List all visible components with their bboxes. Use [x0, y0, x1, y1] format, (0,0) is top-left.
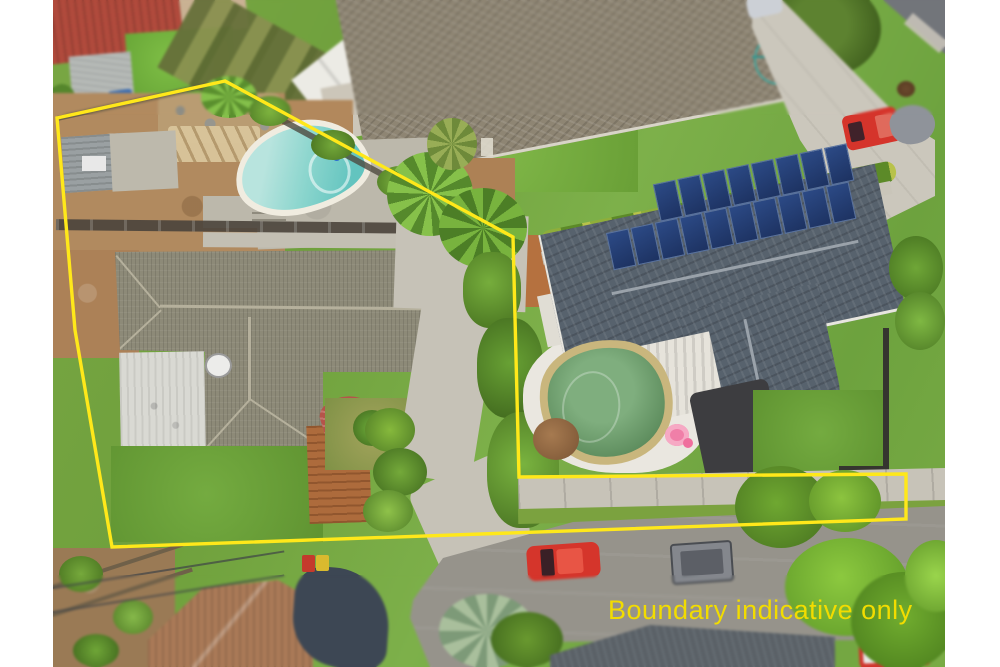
tree [809, 470, 881, 532]
roof-hip [203, 398, 251, 451]
backyard-lawn [753, 390, 888, 475]
tilt-shift-blur [53, 0, 945, 115]
backyard-lawn [111, 446, 323, 542]
hedge [363, 490, 413, 532]
aerial-photo-canvas: Boundary indicative only [0, 0, 1000, 667]
roof-ridge [160, 305, 425, 311]
hedge [365, 408, 415, 452]
car-windscreen [540, 549, 555, 577]
hedge [373, 448, 427, 496]
car-windscreen [848, 121, 866, 142]
trailer-tub [680, 549, 724, 577]
shrubs [463, 252, 521, 328]
concrete-pad [110, 130, 179, 191]
bush [311, 130, 355, 160]
roof-ridge [248, 317, 251, 400]
roof-hip [118, 309, 162, 350]
car-roof [556, 548, 584, 575]
palm-tree [427, 118, 477, 170]
yellow-wheelie-bin [316, 555, 329, 571]
red-wheelie-bin [302, 555, 315, 572]
rock-feature [533, 418, 579, 460]
boundary-caption: Boundary indicative only [608, 595, 913, 626]
white-garage-roof [119, 351, 206, 450]
roof-hip [115, 255, 160, 308]
dark-fence [883, 328, 889, 474]
flamingo-floatie-head [683, 438, 693, 448]
satellite-dish [205, 353, 232, 378]
aerial-photo [53, 0, 945, 667]
shed-roof-panel [82, 156, 106, 171]
bush [895, 292, 945, 350]
bush [889, 236, 943, 300]
